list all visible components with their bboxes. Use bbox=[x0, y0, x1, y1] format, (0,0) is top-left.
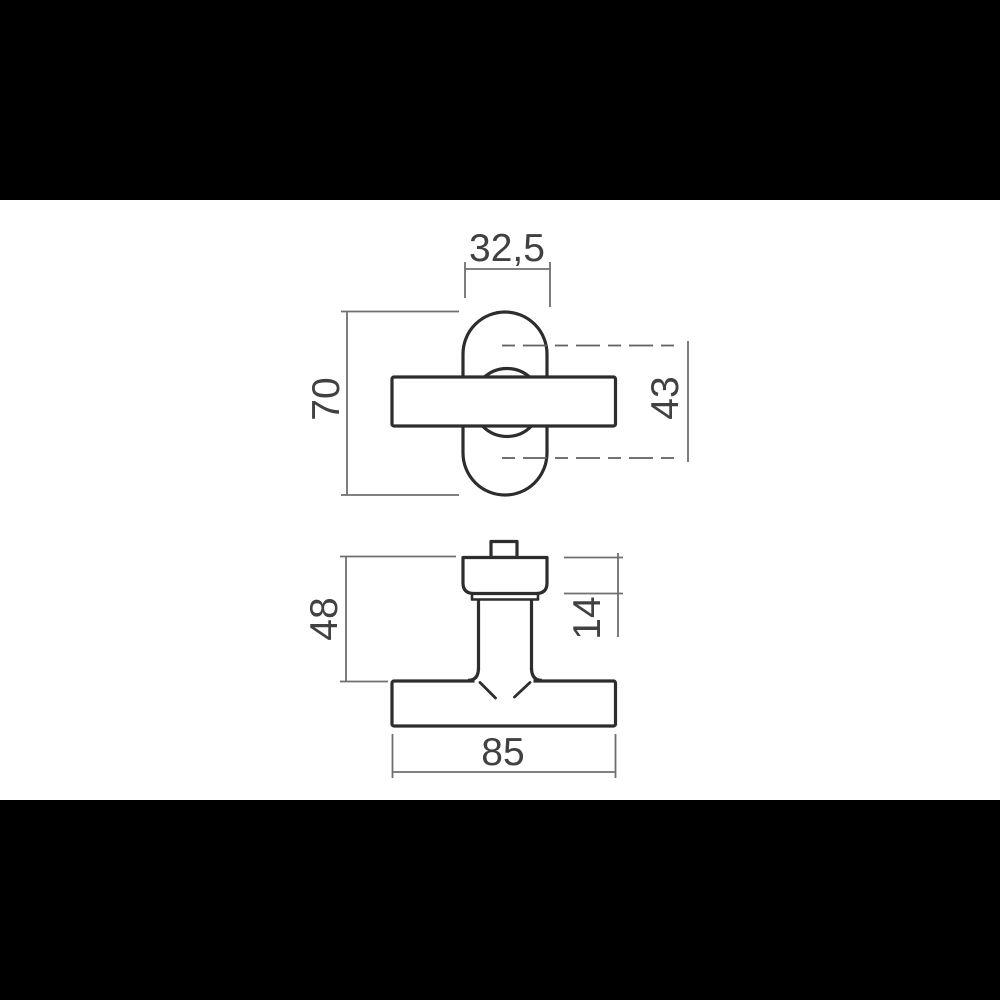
dim-label-height-to-grip: 48 bbox=[303, 597, 346, 640]
technical-drawing-canvas: 32,5 70 43 48 bbox=[0, 0, 1000, 1000]
dim-label-screw-centers: 43 bbox=[644, 376, 687, 419]
dim-label-grip-length: 85 bbox=[481, 731, 524, 774]
spindle-tab bbox=[491, 542, 517, 558]
grip-bar-side bbox=[392, 681, 616, 726]
screenshot-stage: 32,5 70 43 48 bbox=[0, 0, 1000, 1000]
dim-label-rosette-depth: 14 bbox=[566, 596, 609, 639]
dim-label-rosette-width: 32,5 bbox=[469, 227, 545, 270]
dim-label-rosette-height: 70 bbox=[305, 377, 348, 420]
bar-top-edge-gap bbox=[475, 678, 534, 684]
grip-bar-front bbox=[392, 377, 616, 426]
rosette-cap-side bbox=[463, 558, 547, 594]
